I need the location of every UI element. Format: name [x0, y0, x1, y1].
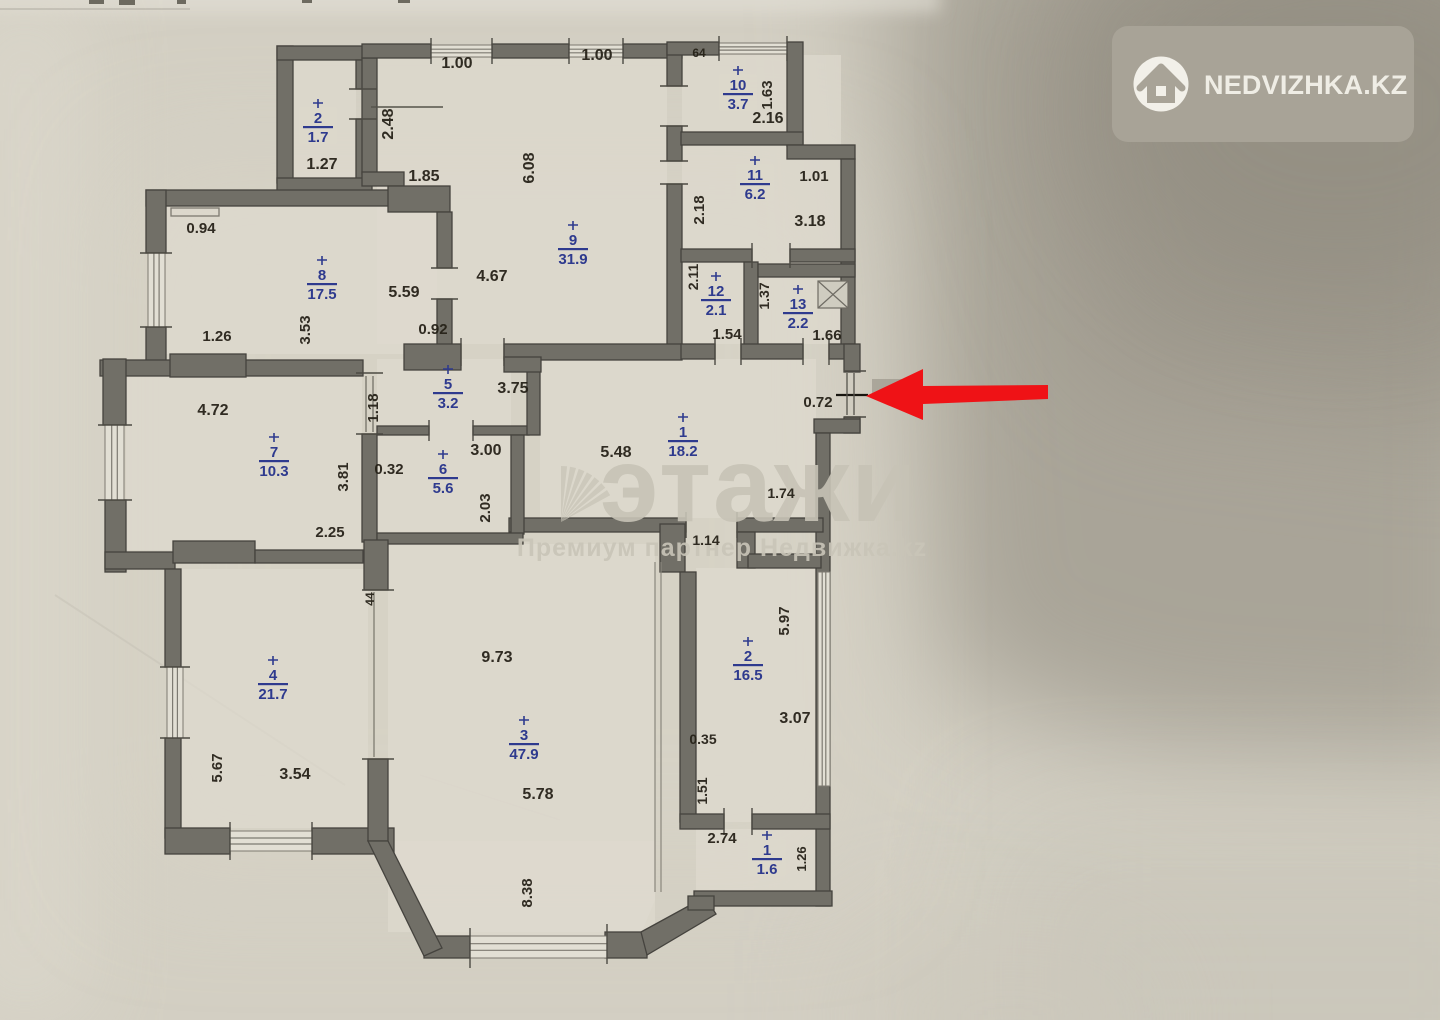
svg-text:1: 1: [763, 842, 771, 859]
svg-text:16.5: 16.5: [733, 667, 762, 684]
svg-text:3.7: 3.7: [728, 96, 749, 113]
svg-text:4: 4: [269, 667, 278, 684]
svg-text:8.38: 8.38: [519, 878, 536, 907]
svg-text:0.92: 0.92: [418, 321, 447, 338]
svg-text:0.72: 0.72: [803, 394, 832, 411]
svg-text:12: 12: [708, 283, 725, 300]
svg-text:7: 7: [270, 444, 278, 461]
svg-text:3.2: 3.2: [438, 395, 459, 412]
svg-text:1.26: 1.26: [794, 846, 809, 871]
svg-text:3.07: 3.07: [779, 710, 810, 727]
svg-text:2: 2: [744, 648, 752, 665]
svg-text:5.97: 5.97: [776, 606, 793, 635]
svg-text:5.78: 5.78: [522, 786, 553, 803]
svg-text:44: 44: [363, 592, 377, 606]
svg-text:18.2: 18.2: [668, 443, 697, 460]
svg-text:64: 64: [692, 46, 706, 60]
svg-text:4.67: 4.67: [476, 268, 507, 285]
svg-text:1.74: 1.74: [767, 485, 794, 501]
svg-text:10: 10: [730, 77, 747, 94]
svg-text:3.81: 3.81: [335, 462, 352, 491]
svg-text:4.72: 4.72: [197, 402, 228, 419]
svg-text:31.9: 31.9: [558, 251, 587, 268]
svg-text:10.3: 10.3: [259, 463, 288, 480]
svg-text:9: 9: [569, 232, 577, 249]
svg-text:3.54: 3.54: [279, 766, 310, 783]
svg-text:1.66: 1.66: [812, 327, 841, 344]
svg-text:6.2: 6.2: [745, 186, 766, 203]
svg-text:0.32: 0.32: [374, 461, 403, 478]
svg-text:1.00: 1.00: [581, 47, 612, 64]
svg-text:1.26: 1.26: [202, 328, 231, 345]
svg-text:1.7: 1.7: [308, 129, 329, 146]
svg-text:2.11: 2.11: [685, 264, 701, 291]
svg-text:2.16: 2.16: [752, 110, 783, 127]
svg-text:2.1: 2.1: [706, 302, 727, 319]
svg-text:0.35: 0.35: [689, 731, 716, 747]
svg-text:3.53: 3.53: [297, 315, 314, 344]
svg-text:2.03: 2.03: [477, 493, 494, 522]
svg-text:5: 5: [444, 376, 452, 393]
svg-text:8: 8: [318, 267, 326, 284]
svg-text:1.27: 1.27: [306, 156, 337, 173]
svg-text:NEDVIZHKA.KZ: NEDVIZHKA.KZ: [1204, 70, 1407, 100]
svg-text:3.75: 3.75: [497, 380, 528, 397]
svg-text:21.7: 21.7: [258, 686, 287, 703]
svg-text:2.2: 2.2: [788, 315, 809, 332]
svg-text:5.67: 5.67: [209, 753, 226, 782]
svg-text:11: 11: [747, 167, 763, 184]
svg-text:этажи: этажи: [600, 426, 918, 544]
svg-text:3.00: 3.00: [470, 442, 501, 459]
svg-text:9.73: 9.73: [481, 649, 512, 666]
svg-text:5.59: 5.59: [388, 284, 419, 301]
svg-text:5.6: 5.6: [433, 480, 454, 497]
svg-text:1: 1: [679, 424, 687, 441]
svg-text:1.51: 1.51: [694, 777, 710, 804]
svg-text:1.00: 1.00: [441, 55, 472, 72]
svg-text:1.01: 1.01: [799, 168, 828, 185]
svg-text:1.14: 1.14: [692, 532, 719, 548]
svg-text:17.5: 17.5: [307, 286, 336, 303]
svg-text:Премиум партнер Недвижка.kz: Премиум партнер Недвижка.kz: [517, 534, 927, 562]
svg-text:13: 13: [790, 296, 807, 313]
svg-text:1.6: 1.6: [757, 861, 778, 878]
svg-text:47.9: 47.9: [509, 746, 538, 763]
svg-text:1.63: 1.63: [759, 80, 776, 109]
svg-text:1.54: 1.54: [712, 326, 742, 343]
svg-text:5.48: 5.48: [600, 444, 631, 461]
svg-text:2.25: 2.25: [315, 524, 344, 541]
svg-text:3.18: 3.18: [794, 213, 825, 230]
svg-text:1.85: 1.85: [408, 168, 439, 185]
svg-text:6: 6: [439, 461, 447, 478]
svg-text:3: 3: [520, 727, 528, 744]
svg-text:2.74: 2.74: [707, 830, 737, 847]
svg-text:2.18: 2.18: [691, 195, 708, 224]
svg-text:6.08: 6.08: [521, 152, 538, 183]
svg-text:0.94: 0.94: [186, 220, 216, 237]
svg-text:2: 2: [314, 110, 322, 127]
svg-text:2.48: 2.48: [380, 108, 397, 139]
svg-text:1.18: 1.18: [365, 393, 382, 422]
svg-text:1.37: 1.37: [756, 282, 772, 309]
